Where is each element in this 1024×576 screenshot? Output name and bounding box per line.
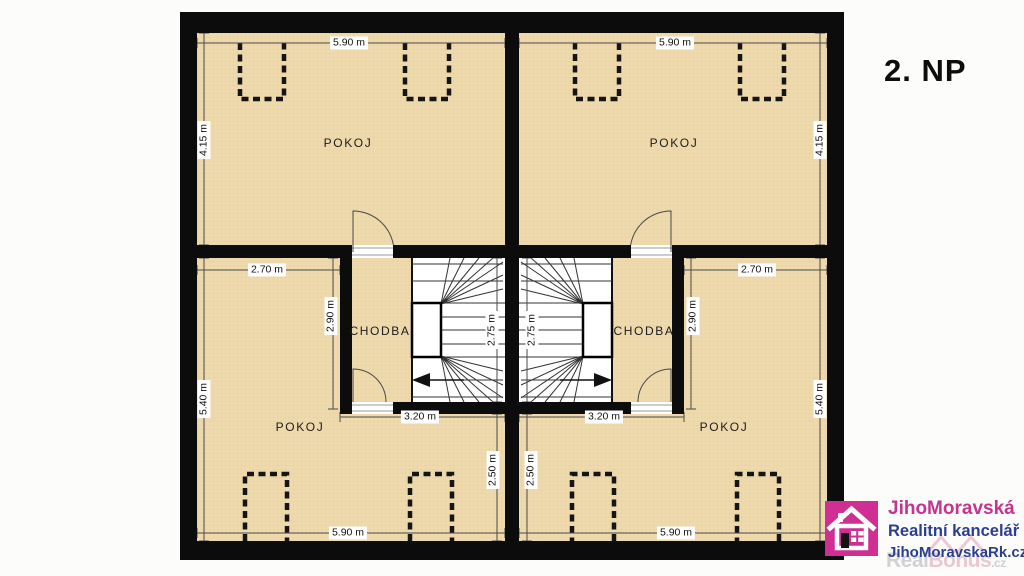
room-label-pokoj-top-left: POKOJ xyxy=(324,136,373,150)
dim-room-height-right: 4.15 m xyxy=(814,121,827,159)
floor-title: 2. NP xyxy=(884,53,967,89)
wall-party xyxy=(505,12,519,560)
agency-subtitle: Realitní kancelář xyxy=(888,520,1024,542)
dim-lower-height-left: 5.40 m xyxy=(198,380,211,418)
agency-name: JihoMoravská xyxy=(888,498,1024,520)
wall-right xyxy=(827,12,844,560)
house-icon xyxy=(825,501,878,556)
dim-upper-height-left: 2.90 m xyxy=(325,297,338,335)
dim-lower-height-right: 5.40 m xyxy=(814,380,827,418)
dim-stair-width-left: 3.20 m xyxy=(401,411,439,424)
room-label-pokoj-bottom-left: POKOJ xyxy=(276,420,325,434)
dim-lower-width-left: 2.70 m xyxy=(248,264,286,277)
room-label-chodba-right: CHODBA xyxy=(614,324,675,338)
dim-lower-width-right: 2.70 m xyxy=(738,264,776,277)
wall-left xyxy=(180,12,197,560)
room-label-pokoj-top-right: POKOJ xyxy=(650,136,699,150)
dim-stair-depth-right: 2.75 m xyxy=(526,311,539,349)
dim-stair-width-right: 3.20 m xyxy=(585,411,623,424)
dim-room-height-left: 4.15 m xyxy=(198,121,211,159)
agency-logo-square xyxy=(825,501,878,556)
room-label-pokoj-bottom-right: POKOJ xyxy=(700,420,749,434)
dim-stair-depth-left: 2.75 m xyxy=(486,311,499,349)
dim-top-width-right: 5.90 m xyxy=(656,37,694,50)
floorplan-canvas xyxy=(0,0,1024,576)
agency-website: JihoMoravskaRk.cz xyxy=(888,542,1024,564)
floorplan-page: POKOJ POKOJ CHODBA CHODBA POKOJ POKOJ 5.… xyxy=(0,0,1024,576)
house-door xyxy=(841,533,849,548)
stair-landing xyxy=(412,303,441,357)
dim-bottom-inner-height-right: 2.50 m xyxy=(525,451,538,489)
dim-upper-height-right: 2.90 m xyxy=(687,297,700,335)
dim-top-width-left: 5.90 m xyxy=(330,37,368,50)
dim-bottom-inner-height-left: 2.50 m xyxy=(487,451,500,489)
room-label-chodba-left: CHODBA xyxy=(350,324,411,338)
dim-bottom-width-left: 5.90 m xyxy=(329,527,367,540)
dim-bottom-width-right: 5.90 m xyxy=(657,527,695,540)
